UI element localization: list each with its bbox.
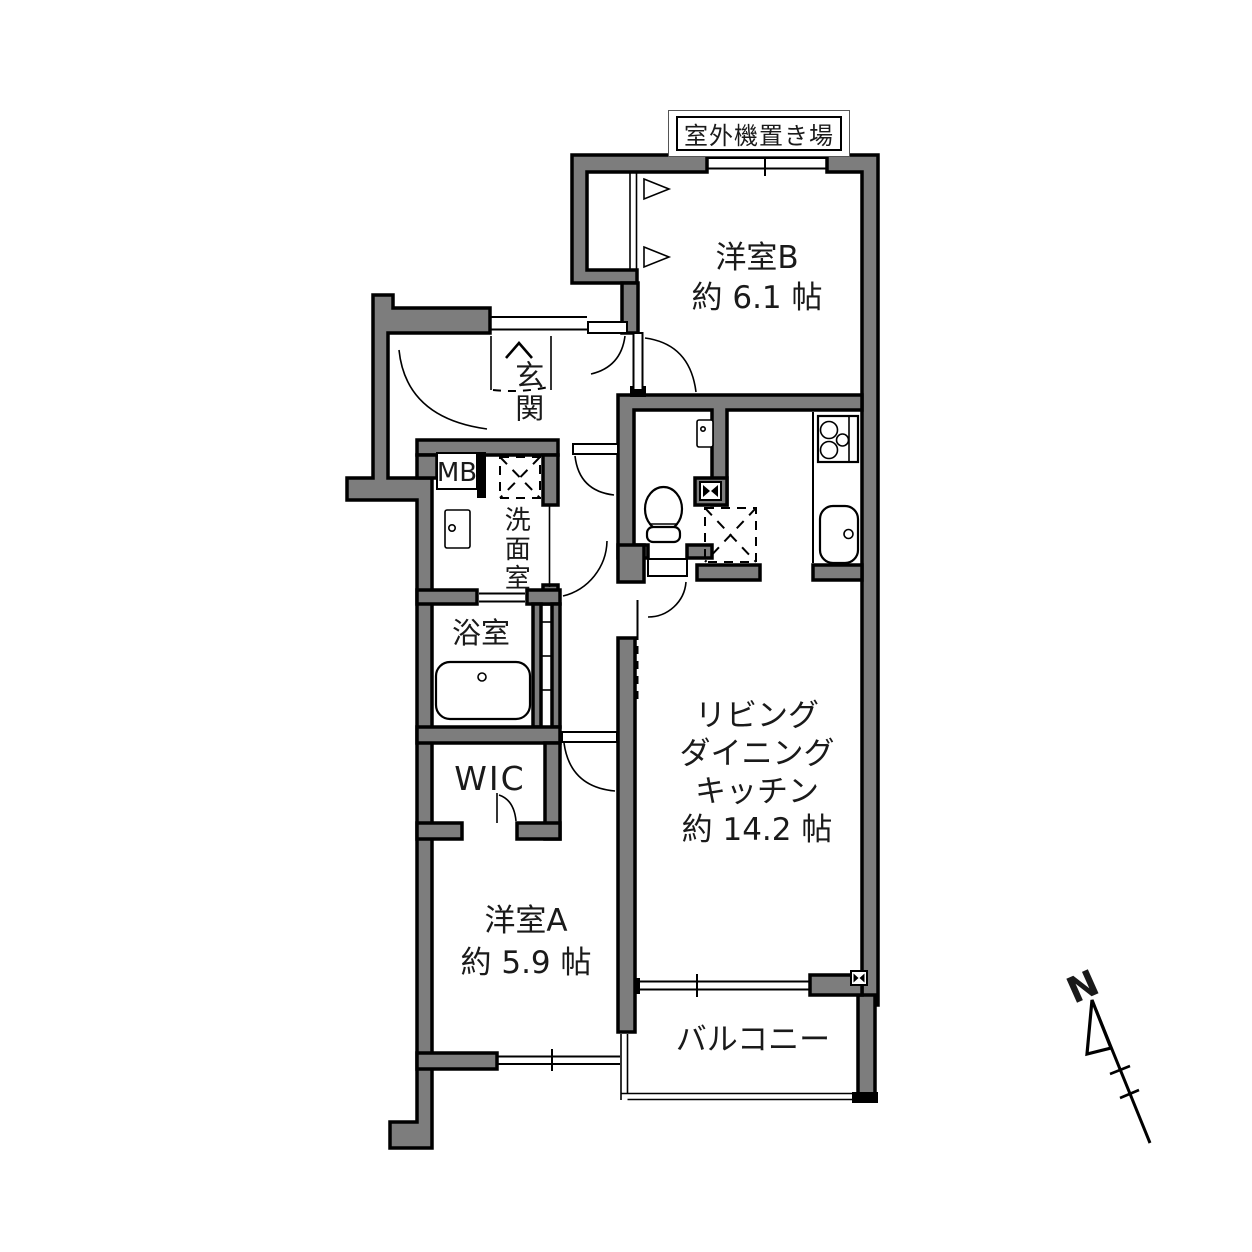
hall-door xyxy=(573,444,618,495)
toilet-basin xyxy=(697,420,713,447)
room-b-size: 約 6.1 帖 xyxy=(691,280,822,317)
wall-bath-south xyxy=(417,727,560,743)
ldk-size: 約 14.2 帖 xyxy=(682,812,833,849)
balcony-label: バルコニー xyxy=(676,1022,830,1059)
room-a-size: 約 5.9 帖 xyxy=(460,945,591,982)
fridge-space xyxy=(705,508,756,562)
wall-counter-south xyxy=(813,565,862,580)
toilet xyxy=(645,487,682,542)
vent-icon xyxy=(851,971,867,985)
room-a-door xyxy=(562,732,617,791)
washroom-label: 洗面室 xyxy=(499,506,530,593)
wall-balcony-right xyxy=(858,995,875,1095)
wall-mb-east xyxy=(477,452,486,498)
vanity-sink xyxy=(445,510,470,548)
ldk-balcony-window xyxy=(640,974,810,997)
genkan-label: 玄関 xyxy=(510,360,545,426)
wall-room-a-south xyxy=(417,1053,497,1069)
bathtub xyxy=(436,662,530,719)
wic-label: WIC xyxy=(454,759,525,799)
wall-wic-south-a xyxy=(417,823,462,839)
wall-bath-east-b xyxy=(552,604,560,727)
washer-space xyxy=(500,457,540,498)
wall-wic-south-b xyxy=(517,823,560,839)
outdoor-unit-label: 室外機置き場 xyxy=(676,116,842,151)
toilet-door xyxy=(648,559,687,617)
room-a-name: 洋室A xyxy=(484,903,567,940)
room-b-closet xyxy=(630,172,669,270)
room-a-window xyxy=(497,1049,620,1071)
wall-bath-east-a xyxy=(533,604,541,727)
washroom-door xyxy=(550,505,608,596)
room-b-door xyxy=(630,333,696,397)
wic-door xyxy=(462,793,517,838)
outdoor-unit-box: 室外機置き場 xyxy=(668,110,850,157)
wall-top-closet xyxy=(572,155,707,283)
wall-toilet-south-b xyxy=(687,545,712,558)
wall-washroom-east-a xyxy=(543,455,558,505)
wall-fridge-south xyxy=(697,565,760,580)
ldk-label-2: ダイニング xyxy=(680,736,835,773)
pipe-space xyxy=(542,622,551,690)
entrance-arrow-icon xyxy=(506,343,532,358)
bathroom-label: 浴室 xyxy=(452,616,510,651)
wall-washroom-south-b xyxy=(527,590,560,604)
stove xyxy=(818,416,858,462)
floor-plan-drawing xyxy=(0,0,1252,1252)
room-b-name: 洋室B xyxy=(715,240,798,277)
meter-box-label: MB xyxy=(437,458,477,489)
wall-washroom-south-a xyxy=(417,590,477,604)
north-arrow xyxy=(1087,1000,1150,1143)
ldk-label-1: リビング xyxy=(695,698,819,735)
wall-ldk-west xyxy=(618,638,635,1032)
wall-mb-west xyxy=(417,455,437,478)
ldk-label-3: キッチン xyxy=(695,774,819,811)
nook-door xyxy=(588,322,627,374)
vent-icon xyxy=(700,482,721,500)
floor-plan: 室外機置き場 洋室B 約 6.1 帖 玄関 MB 洗面室 浴室 WIC 洋室A … xyxy=(0,0,1252,1252)
wall-left-run xyxy=(347,295,490,1148)
bath-door xyxy=(479,594,525,602)
kitchen-sink xyxy=(820,506,858,563)
wall-toilet-corner xyxy=(618,545,644,582)
